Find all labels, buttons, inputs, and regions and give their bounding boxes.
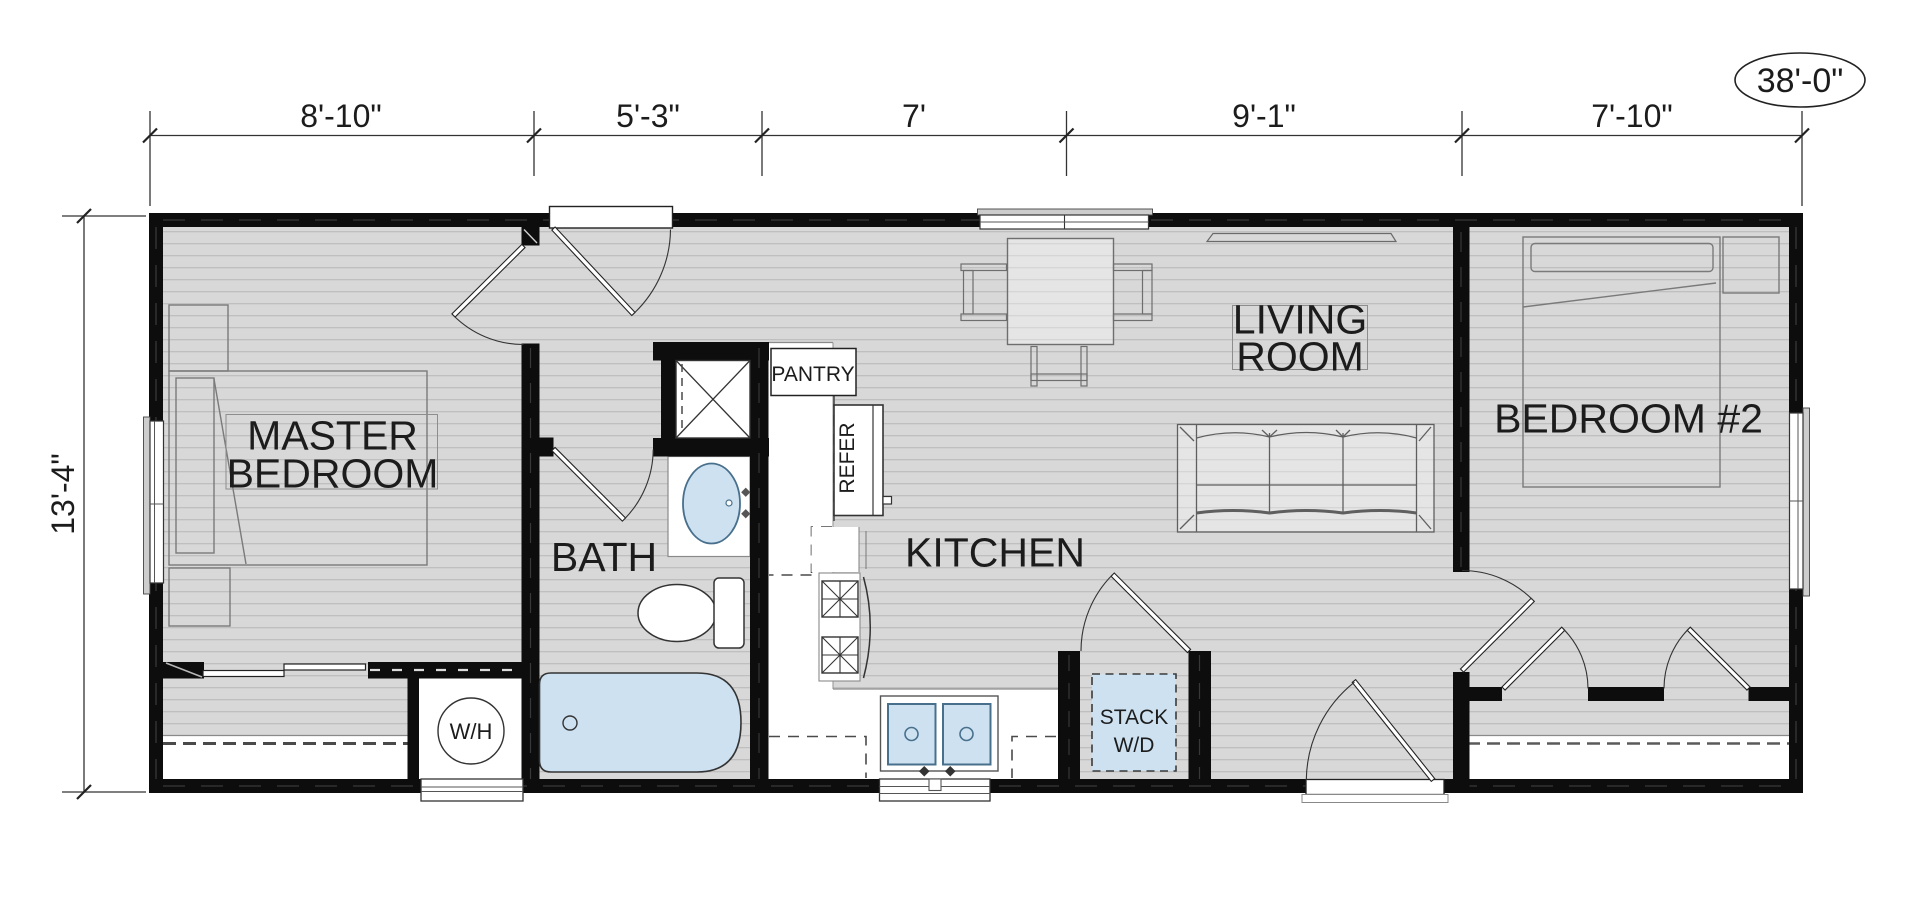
svg-text:W/H: W/H xyxy=(450,719,493,744)
svg-text:BATH: BATH xyxy=(551,534,657,580)
svg-text:38'-0": 38'-0" xyxy=(1757,62,1844,100)
svg-text:W/D: W/D xyxy=(1114,734,1155,757)
svg-text:KITCHEN: KITCHEN xyxy=(905,530,1085,576)
svg-text:BEDROOM #2: BEDROOM #2 xyxy=(1494,396,1763,442)
svg-text:7'-10": 7'-10" xyxy=(1591,98,1673,134)
svg-text:ROOM: ROOM xyxy=(1236,334,1364,380)
svg-text:REFER: REFER xyxy=(836,422,859,493)
svg-text:5'-3": 5'-3" xyxy=(616,98,680,134)
svg-text:8'-10": 8'-10" xyxy=(300,98,382,134)
svg-text:7': 7' xyxy=(902,98,926,134)
svg-text:STACK: STACK xyxy=(1100,706,1168,729)
svg-text:13'-4": 13'-4" xyxy=(45,453,81,535)
svg-text:BEDROOM: BEDROOM xyxy=(227,451,439,497)
svg-text:9'-1": 9'-1" xyxy=(1232,98,1296,134)
svg-text:PANTRY: PANTRY xyxy=(771,363,854,386)
